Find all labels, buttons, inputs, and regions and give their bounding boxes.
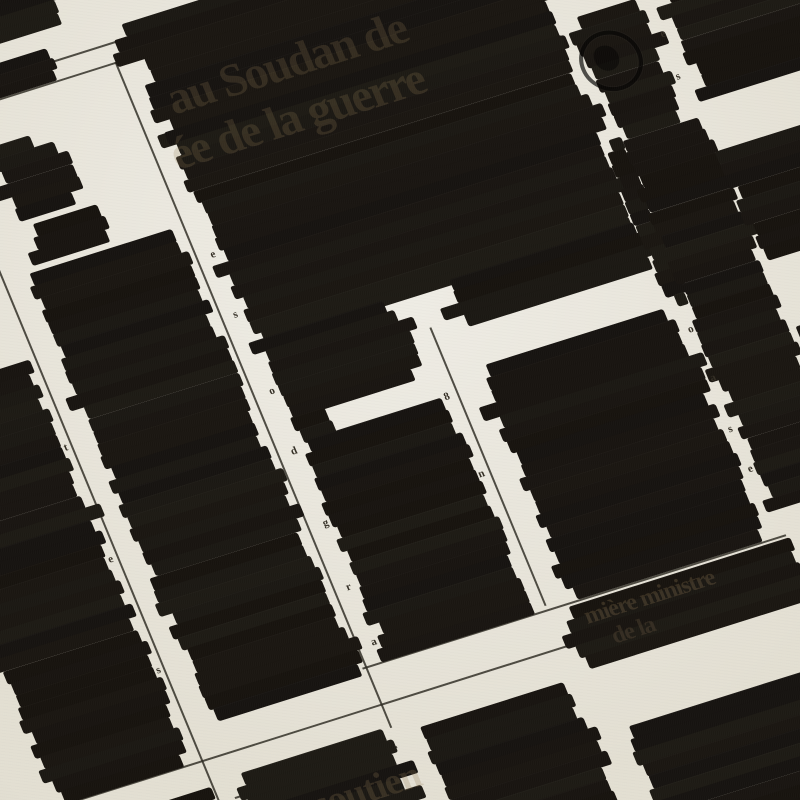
letter-fragment: e [746, 463, 755, 475]
letter-fragment: a [369, 637, 378, 649]
newspaper-page: au Soudan de ée de la guerre mière minis… [0, 0, 800, 800]
letter-fragment: e [659, 29, 668, 41]
letter-fragment: e [209, 249, 218, 261]
letter-fragment: 8 [442, 391, 451, 403]
letter-fragment: e [106, 554, 115, 566]
letter-fragment: n [477, 468, 487, 480]
letter-fragment: d [289, 446, 299, 458]
letter-fragments-layer: esodgrates8noasees [0, 0, 800, 800]
letter-fragment: o [267, 386, 276, 398]
letter-fragment: s [674, 71, 682, 82]
letter-fragment: s [726, 424, 734, 435]
letter-fragment: s [154, 665, 162, 676]
letter-fragment: t [62, 442, 70, 453]
letter-fragment: g [321, 518, 330, 530]
letter-fragment: a [708, 372, 717, 384]
letter-fragment: o [686, 324, 695, 336]
letter-fragment: s [231, 309, 239, 320]
letter-fragment: r [344, 582, 353, 594]
artwork-canvas: au Soudan de ée de la guerre mière minis… [0, 0, 800, 800]
